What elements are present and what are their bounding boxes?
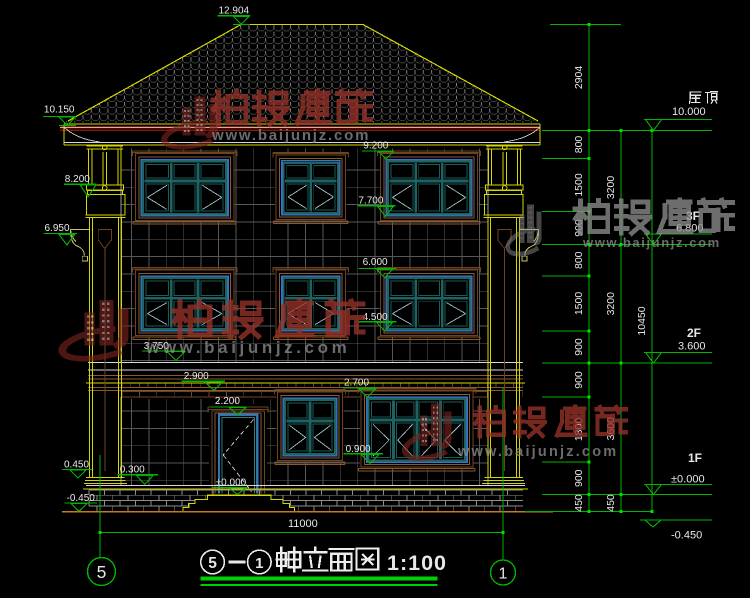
svg-text:800: 800 bbox=[573, 251, 585, 269]
svg-text:1: 1 bbox=[255, 555, 263, 572]
svg-text:900: 900 bbox=[573, 469, 585, 487]
svg-text:www.baijunjz.com: www.baijunjz.com bbox=[582, 235, 721, 250]
svg-text:2F: 2F bbox=[687, 326, 701, 340]
svg-text:5: 5 bbox=[97, 562, 107, 582]
svg-text:1500: 1500 bbox=[573, 173, 585, 197]
svg-text:www.baijunjz.com: www.baijunjz.com bbox=[211, 127, 370, 144]
svg-text:1F: 1F bbox=[688, 451, 702, 465]
svg-text:900: 900 bbox=[573, 338, 585, 356]
svg-text:1500: 1500 bbox=[573, 292, 585, 316]
svg-text:7.700: 7.700 bbox=[358, 196, 383, 207]
svg-text:0.300: 0.300 bbox=[120, 464, 145, 475]
svg-text:2.200: 2.200 bbox=[215, 396, 240, 407]
svg-text:10.000: 10.000 bbox=[672, 106, 706, 118]
svg-text:10450: 10450 bbox=[636, 306, 648, 335]
svg-text:8.200: 8.200 bbox=[65, 174, 90, 185]
svg-text:2.900: 2.900 bbox=[184, 371, 209, 382]
svg-text:±0.000: ±0.000 bbox=[216, 477, 247, 488]
svg-text:4.500: 4.500 bbox=[363, 312, 388, 323]
svg-text:5: 5 bbox=[208, 555, 217, 572]
svg-text:2904: 2904 bbox=[573, 66, 585, 90]
svg-text:-0.450: -0.450 bbox=[671, 530, 702, 542]
svg-text:450: 450 bbox=[605, 494, 617, 512]
svg-text:www.baijunjz.com: www.baijunjz.com bbox=[457, 444, 618, 460]
svg-text:±0.000: ±0.000 bbox=[671, 474, 705, 486]
svg-text:3200: 3200 bbox=[605, 176, 617, 200]
svg-text:0.900: 0.900 bbox=[346, 444, 371, 455]
svg-text:www.baijunjz.com: www.baijunjz.com bbox=[145, 338, 350, 357]
svg-text:1: 1 bbox=[499, 566, 508, 583]
svg-text:1:100: 1:100 bbox=[387, 551, 447, 575]
svg-text:11000: 11000 bbox=[288, 518, 318, 530]
svg-text:6.950: 6.950 bbox=[45, 223, 70, 234]
svg-text:3.600: 3.600 bbox=[678, 341, 706, 353]
svg-text:900: 900 bbox=[573, 371, 585, 389]
svg-text:450: 450 bbox=[573, 494, 585, 512]
svg-text:2.700: 2.700 bbox=[344, 378, 369, 389]
svg-text:6.000: 6.000 bbox=[363, 257, 388, 268]
svg-text:12.904: 12.904 bbox=[219, 6, 250, 17]
svg-text:800: 800 bbox=[573, 136, 585, 154]
svg-text:10.150: 10.150 bbox=[44, 105, 75, 116]
svg-text:3200: 3200 bbox=[605, 292, 617, 316]
svg-text:-0.450: -0.450 bbox=[67, 493, 96, 504]
svg-text:0.450: 0.450 bbox=[64, 459, 89, 470]
